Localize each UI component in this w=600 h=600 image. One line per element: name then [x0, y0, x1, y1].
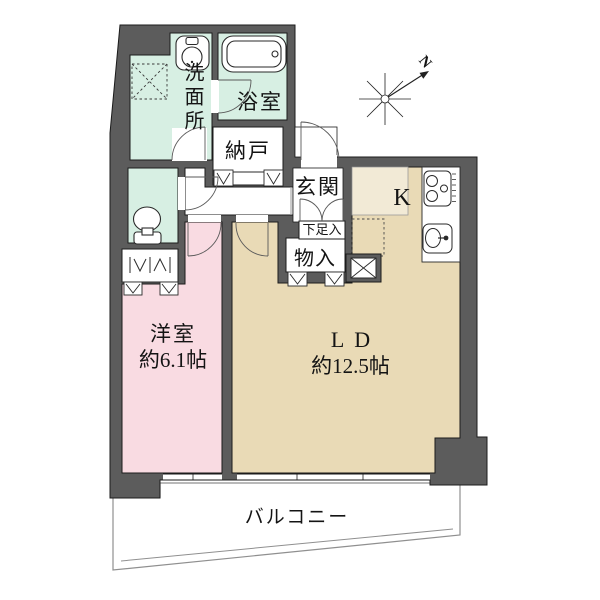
label-balcony: バルコニー — [231, 502, 363, 529]
label-storage: 納戸 — [212, 135, 284, 165]
label-shoe-cabinet: 下足入 — [299, 221, 345, 239]
kitchen-sink-icon — [423, 224, 452, 253]
toilet-icon — [134, 207, 162, 244]
label-western-room: 洋室 約6.1帖 — [108, 321, 238, 373]
label-western-room-name: 洋室 — [108, 321, 238, 347]
floor-plan: 洗面所 浴室 納戸 玄関 下足入 物入 K 洋室 約6.1帖 LD 約12.5帖… — [0, 0, 600, 600]
compass-rose — [359, 71, 429, 125]
label-living-dining: LD 約12.5帖 — [278, 327, 423, 379]
western-room-window — [163, 474, 222, 480]
ld-door-opening — [236, 215, 268, 222]
entrance-door-opening — [301, 155, 337, 169]
compass-needle — [385, 72, 427, 99]
label-living-dining-size: 約12.5帖 — [278, 353, 423, 379]
pipe-space — [346, 254, 381, 282]
label-monoire: 物入 — [284, 242, 346, 271]
bathtub-icon — [222, 36, 286, 72]
western-door-opening — [188, 215, 221, 222]
label-bathroom: 浴室 — [224, 86, 296, 116]
stove-icon — [424, 171, 456, 206]
label-washroom: 洗面所 — [178, 62, 207, 134]
label-western-room-size: 約6.1帖 — [108, 347, 238, 373]
living-dining-window — [237, 474, 430, 480]
toilet-door-opening — [178, 177, 185, 210]
label-living-dining-name: LD — [278, 327, 423, 353]
label-entrance: 玄関 — [282, 171, 354, 201]
bath-door-opening — [211, 80, 219, 113]
label-kitchen: K — [384, 185, 420, 212]
